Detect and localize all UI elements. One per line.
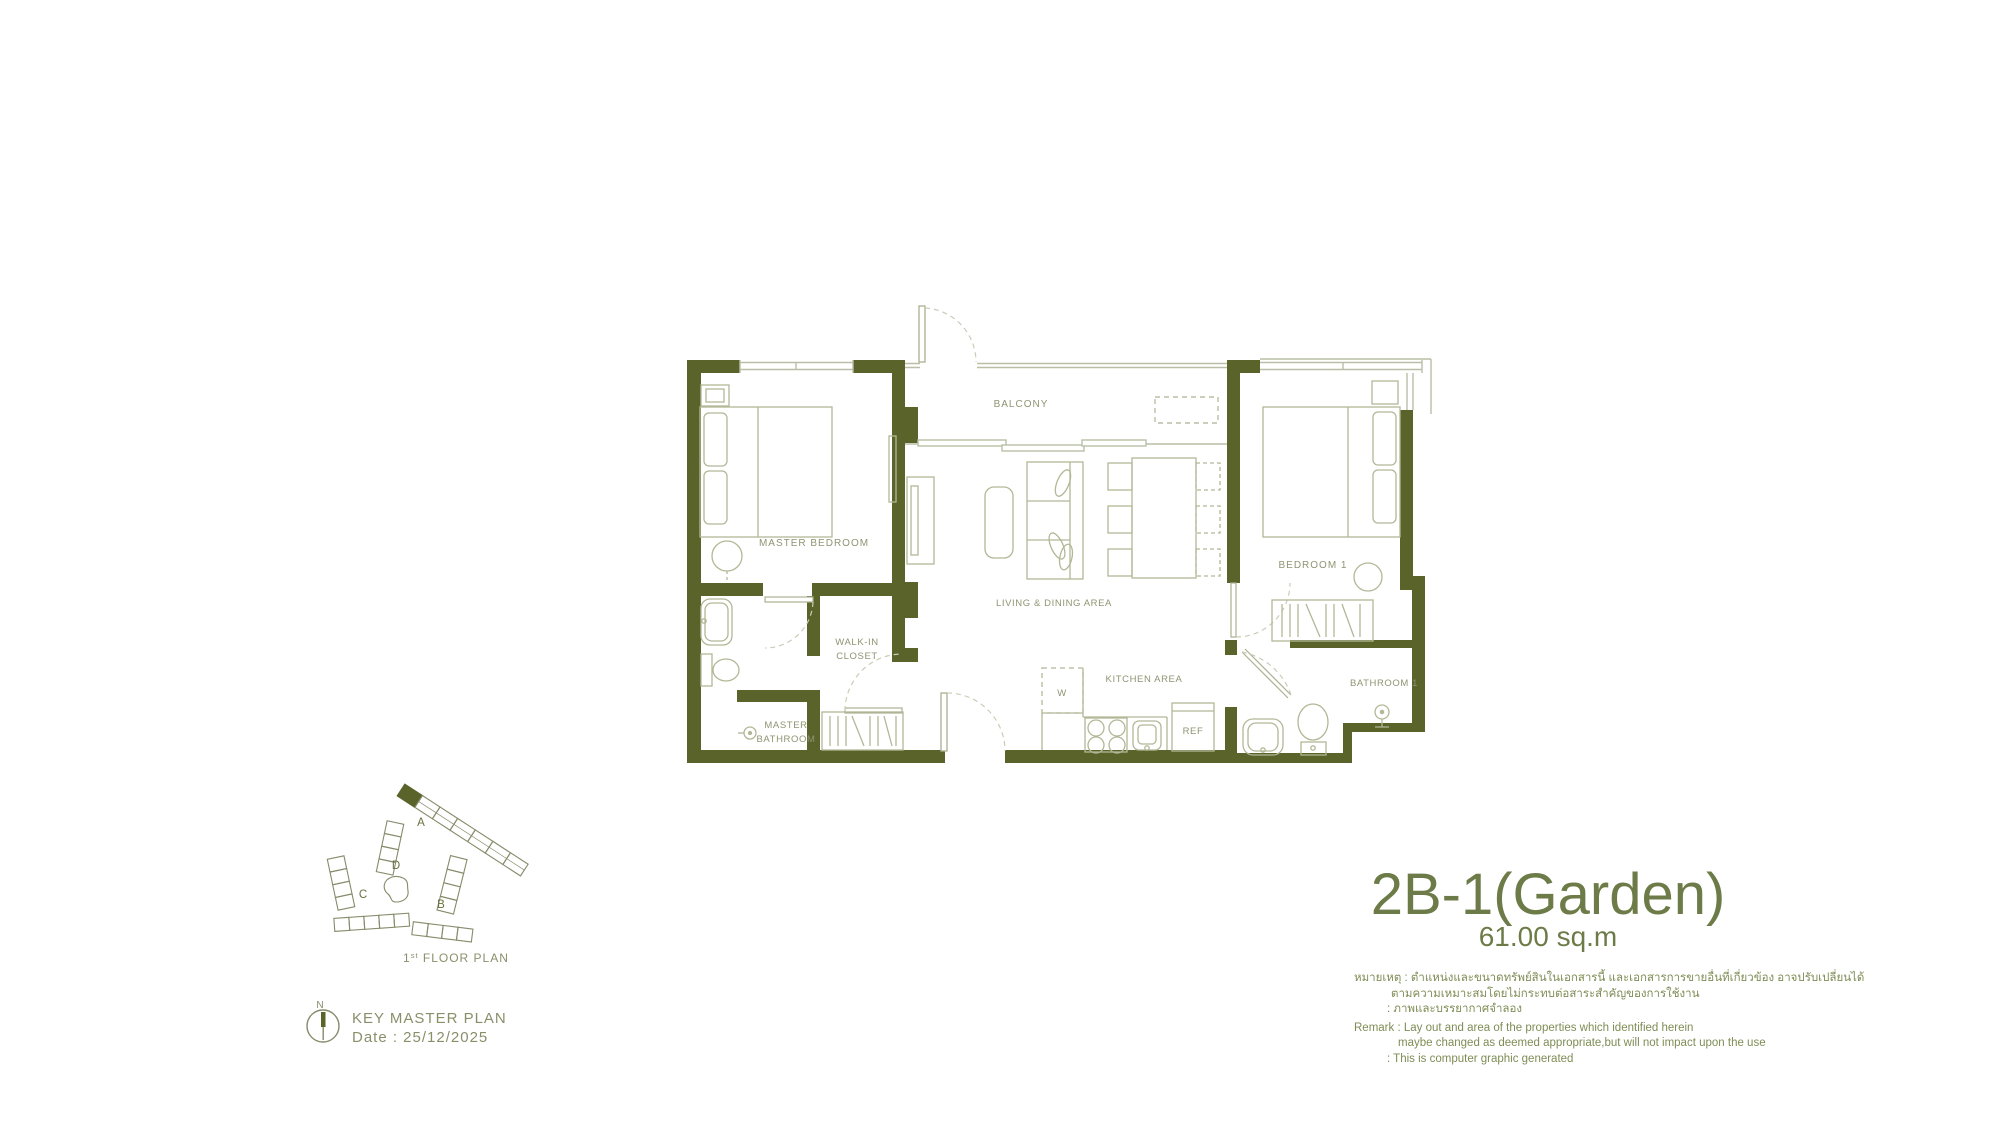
floor-rest: FLOOR PLAN	[419, 951, 509, 965]
unit-area: 61.00 sq.m	[1358, 921, 1738, 953]
building-c	[327, 856, 354, 910]
balcony-label: BALCONY	[994, 399, 1049, 410]
walk-in-closet-label-1: WALK-IN	[835, 637, 878, 648]
building-d-label: D	[392, 860, 400, 872]
remark-line-thai-2: ตามความเหมาะสมโดยไม่กระทบต่อสาระสำคัญของ…	[1354, 987, 1864, 1003]
master-bedroom-furniture	[700, 385, 896, 583]
floor-plan-page: BALCONY MASTER BEDROOM BEDROOM 1 LIVING …	[0, 0, 2000, 1125]
remark-line-thai-3: : ภาพและบรรยากาศจำลอง	[1354, 1002, 1864, 1018]
floor-plan-drawing: BALCONY MASTER BEDROOM BEDROOM 1 LIVING …	[0, 0, 2000, 1125]
key-master-plan-title: KEY MASTER PLAN	[352, 1010, 507, 1027]
remark-line-en-3: : This is computer graphic generated	[1354, 1052, 1864, 1068]
master-bathroom-label-1: MASTER	[764, 720, 807, 731]
highlighted-unit	[397, 784, 422, 807]
master-bathroom-fixtures	[701, 599, 756, 739]
walk-in-closet-wardrobe	[822, 712, 903, 750]
remark-line-en-2: maybe changed as deemed appropriate,but …	[1354, 1036, 1864, 1052]
remark-block: หมายเหตุ : ตำแหน่งและขนาดทรัพย์สินในเอกส…	[1354, 971, 1864, 1067]
bedroom1-door	[1231, 583, 1290, 637]
entrance-door-top	[919, 306, 976, 362]
room-labels: BALCONY MASTER BEDROOM BEDROOM 1 LIVING …	[757, 399, 1419, 745]
floor-sup: st	[411, 951, 419, 960]
key-master-plan-map	[327, 784, 528, 942]
building-a	[397, 784, 528, 876]
amenity-area	[384, 876, 408, 902]
building-b-label: B	[437, 899, 445, 911]
remark-line-en-1: Remark : Lay out and area of the propert…	[1354, 1018, 1864, 1037]
entrance-door-bottom	[941, 693, 1005, 751]
master-bathroom-door	[765, 597, 813, 648]
building-a-label: A	[417, 817, 425, 829]
living-dining-furniture	[907, 458, 1220, 579]
master-bathroom-label-2: BATHROOM	[757, 734, 816, 745]
key-master-plan-date: Date : 25/12/2025	[352, 1029, 488, 1046]
walk-in-closet-door	[845, 654, 902, 713]
master-bedroom-label: MASTER BEDROOM	[759, 538, 869, 549]
floor-num: 1	[403, 951, 411, 965]
bathroom1-label: BATHROOM 1	[1350, 678, 1418, 689]
doors	[765, 306, 1291, 751]
remark-line-thai-1: หมายเหตุ : ตำแหน่งและขนาดทรัพย์สินในเอกส…	[1354, 971, 1864, 987]
windows	[740, 359, 1431, 451]
bedroom1-furniture	[1263, 381, 1400, 641]
compass-n-label: N	[316, 1000, 323, 1011]
floor-plan-caption: 1st FLOOR PLAN	[403, 951, 509, 965]
kitchen-label: KITCHEN AREA	[1106, 674, 1183, 685]
unit-type-title: 2B-1(Garden)	[1358, 861, 1738, 928]
building-c-lower	[334, 913, 410, 931]
bathroom1-door	[1242, 649, 1291, 698]
compass-icon: N	[307, 1000, 339, 1042]
building-b-lower	[412, 922, 473, 942]
washer-label: W	[1057, 688, 1067, 699]
building-c-label: C	[359, 889, 367, 901]
walk-in-closet-label-2: CLOSET	[836, 651, 878, 662]
living-dining-label: LIVING & DINING AREA	[996, 598, 1112, 609]
bedroom1-label: BEDROOM 1	[1278, 560, 1347, 571]
refrigerator-label: REF	[1183, 726, 1204, 737]
